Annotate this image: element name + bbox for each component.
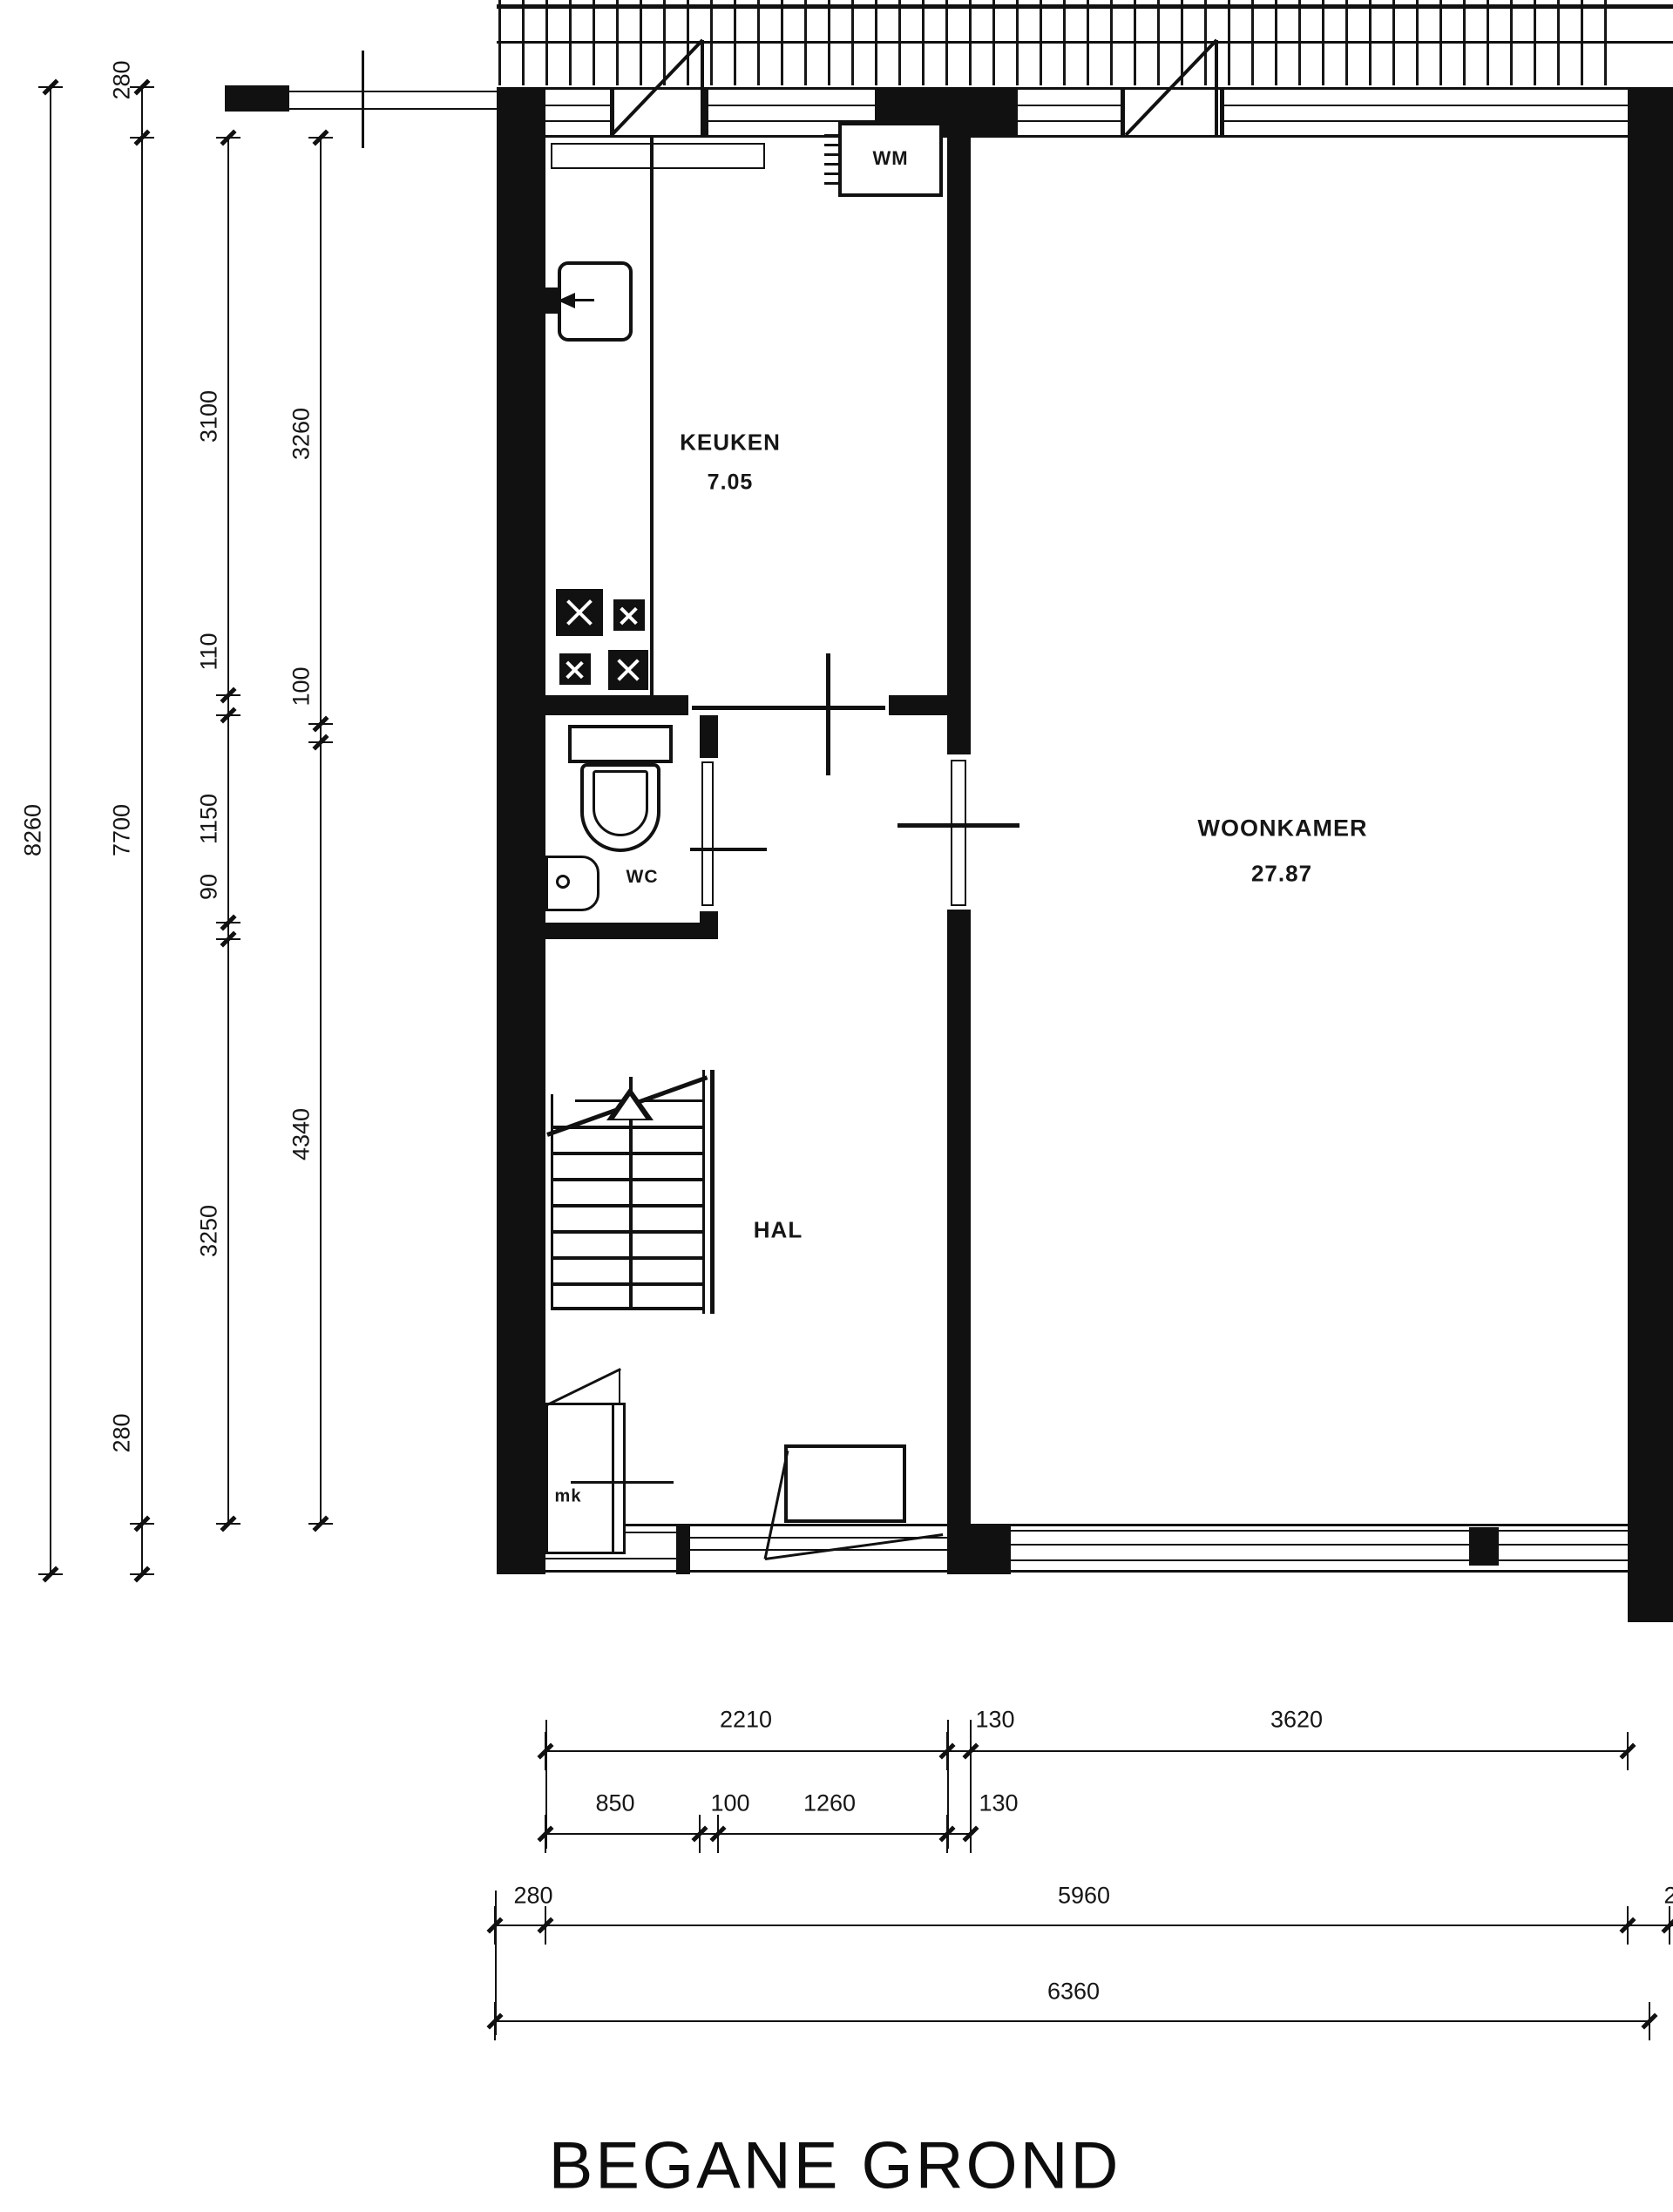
dim-label: 7700 [109, 804, 136, 856]
kitchen-window-sill [551, 143, 765, 169]
stair-tread [551, 1256, 704, 1260]
bottom-wall-inner-face [545, 1524, 1628, 1526]
window-line [545, 105, 610, 106]
deck-door-edge [1215, 40, 1218, 136]
window-line [1223, 105, 1628, 106]
stove-burner-icon [559, 653, 591, 685]
dim-label: 1260 [803, 1790, 856, 1817]
fence-wall-stub [225, 85, 289, 112]
stair-tread [551, 1178, 704, 1181]
dim-label: 3250 [196, 1205, 223, 1257]
fence-line [289, 91, 497, 92]
dim-label: 1150 [196, 794, 223, 844]
window-line [545, 120, 610, 122]
stove-burner-icon [608, 650, 648, 690]
deck-edge-line [497, 4, 1673, 9]
stair-tread [551, 1204, 704, 1207]
left-wall [497, 87, 545, 1574]
window-line [708, 105, 875, 106]
room-label-keuken: KEUKEN [680, 430, 781, 457]
dim-label: 5960 [1058, 1883, 1110, 1910]
kitchen-door-swing-cross-icon [826, 653, 830, 775]
toilet-cistern-icon [568, 725, 673, 763]
bottom-wall-outer-face [545, 1570, 1628, 1573]
stair-tread [551, 1230, 704, 1234]
kitchen-wall-segment [889, 695, 947, 715]
stair-tread [551, 1152, 704, 1155]
dim-label: 110 [196, 632, 223, 670]
dim-label: 280 [513, 1883, 552, 1910]
floor-plan: KEUKEN 7.05 WOONKAMER 27.87 HAL WC WM mk… [0, 0, 1673, 2212]
window-mullion [1469, 1527, 1499, 1566]
meter-cupboard-door-edge [612, 1403, 614, 1554]
stair-tread [551, 1307, 704, 1310]
room-label-mk: mk [555, 1487, 582, 1507]
window-line [1018, 120, 1124, 122]
wall-foot [947, 1524, 1011, 1574]
dim-label: 100 [710, 1790, 749, 1817]
right-party-wall [1628, 87, 1673, 1622]
toilet-bowl-inner-icon [593, 770, 648, 836]
kitchen-door-leaf [692, 706, 885, 710]
livingroom-door-swing-cross-icon [897, 823, 1019, 828]
front-door-leaf [784, 1444, 906, 1523]
meter-cupboard-door-swing [545, 1368, 621, 1407]
dim-label: 3100 [196, 390, 223, 443]
window-line [1011, 1544, 1628, 1546]
dim-label: 850 [595, 1790, 634, 1817]
stove-burner-icon [556, 589, 603, 636]
dim-label: 280 [109, 1413, 136, 1452]
livingroom-door-leaf [951, 760, 966, 906]
dim-label: 130 [975, 1707, 1014, 1734]
stairs-right-stringer [710, 1070, 715, 1314]
window-line [1011, 1530, 1628, 1532]
fence-tick [362, 51, 364, 148]
kitchen-wall-segment [545, 695, 688, 715]
deck-door-edge [701, 40, 704, 136]
kitchen-counter-edge [650, 138, 654, 695]
stove-burner-icon [613, 599, 645, 631]
stairs-direction-arrow-inner [614, 1096, 646, 1119]
dim-label: 90 [196, 874, 223, 900]
room-label-wm: WM [872, 147, 908, 170]
dim-line [545, 1750, 1628, 1752]
livingroom-wall-segment [947, 910, 971, 1574]
drawing-title: BEGANE GROND [549, 2128, 1121, 2204]
dim-line [50, 87, 51, 1574]
dim-line [545, 1833, 971, 1835]
deck-mid-line [497, 41, 1673, 44]
window-line [545, 1558, 688, 1559]
dim-label: 6360 [1047, 1979, 1100, 2006]
dim-label: 100 [288, 666, 315, 706]
room-label-wc: WC [627, 867, 659, 888]
room-label-woonkamer: WOONKAMER [1198, 815, 1368, 842]
washbasin-drain-icon [556, 875, 570, 889]
faucet-stem [572, 299, 594, 301]
window-post [1220, 87, 1224, 138]
window-line [1018, 105, 1124, 106]
dim-label: 4340 [288, 1108, 315, 1160]
stair-tread [551, 1282, 704, 1286]
dim-label-partial: 2 [1663, 1883, 1673, 1910]
dim-line [495, 1925, 1673, 1926]
wc-bottom-wall [545, 923, 718, 939]
meter-cupboard-door-post [619, 1370, 620, 1404]
window-line [1011, 1559, 1628, 1561]
window-post [704, 87, 708, 138]
washbasin-icon [545, 856, 599, 911]
window-post [1121, 87, 1125, 138]
dim-label: 2210 [720, 1707, 772, 1734]
wc-wall-segment [700, 715, 718, 758]
meter-cupboard-line [571, 1481, 674, 1484]
dim-label: 280 [109, 60, 136, 99]
window-line [1223, 120, 1628, 122]
dim-line [320, 138, 322, 1524]
room-area-woonkamer: 27.87 [1251, 861, 1312, 888]
room-label-hal: HAL [754, 1217, 803, 1244]
livingroom-wall-segment [947, 138, 971, 754]
top-wall-inner-face [497, 135, 1673, 138]
dim-label: 8260 [20, 804, 47, 856]
wc-door-swing-cross-icon [690, 848, 767, 851]
top-wall-outer-face [497, 87, 1673, 90]
wc-door-leaf [701, 761, 714, 906]
dim-line [227, 138, 229, 1524]
dim-label: 3260 [288, 408, 315, 460]
washing-machine-hatch-icon [824, 132, 840, 185]
dim-label: 3620 [1270, 1707, 1323, 1734]
stairs-right-stringer [702, 1070, 705, 1314]
fence-line [289, 108, 497, 110]
dim-line [495, 2020, 1649, 2022]
dim-line [141, 87, 143, 1574]
dim-label: 130 [979, 1790, 1018, 1817]
room-area-keuken: 7.05 [708, 470, 754, 496]
